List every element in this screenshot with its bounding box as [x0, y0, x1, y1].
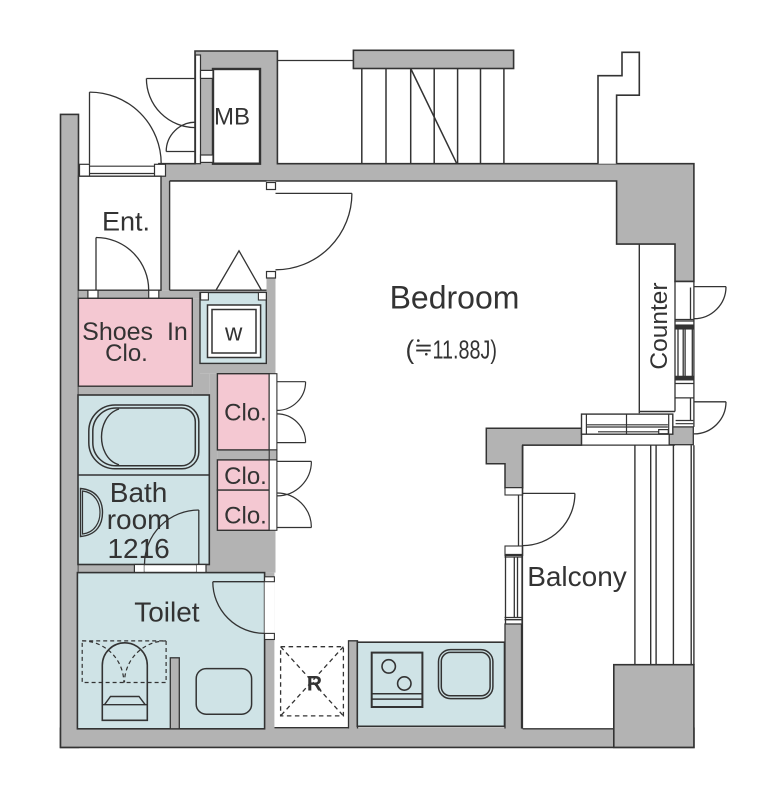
svg-text:Clo.: Clo. [224, 503, 267, 530]
svg-text:w: w [224, 320, 243, 347]
svg-text:Balcony: Balcony [527, 561, 627, 592]
svg-text:room: room [107, 504, 171, 535]
svg-text:(: ( [406, 334, 415, 364]
svg-text:Clo.: Clo. [105, 340, 148, 367]
svg-text:Bedroom: Bedroom [390, 280, 520, 316]
svg-text:1216: 1216 [107, 533, 169, 564]
svg-text:MB: MB [214, 104, 250, 131]
svg-text:Clo.: Clo. [224, 400, 267, 427]
svg-text:11.88J): 11.88J) [433, 335, 497, 364]
svg-text:Toilet: Toilet [134, 597, 200, 628]
svg-text:Clo.: Clo. [224, 463, 267, 490]
svg-text:Counter: Counter [646, 282, 673, 369]
svg-text:R: R [307, 673, 322, 696]
svg-text:Ent.: Ent. [102, 207, 150, 237]
